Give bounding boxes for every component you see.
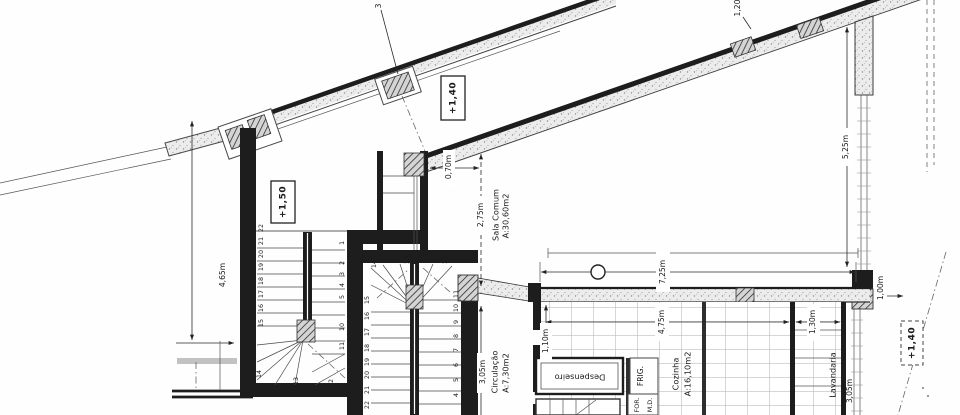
staircase-right: 14 13 12 15 16 17 18 19 20 21 22 11 10 9…	[363, 256, 461, 415]
kitchen-top-wall	[533, 288, 870, 302]
cabinet-run	[536, 399, 620, 415]
right-exterior	[852, 0, 946, 415]
step-number: 6	[452, 363, 460, 367]
laundry-depth-label: 3,05m	[845, 379, 854, 403]
corner-column	[852, 270, 873, 289]
dim-sala-height: 2,75m	[476, 203, 485, 227]
floor-plan-page: 22 21 20 19 18 17 16 15 1 2 3 4 5 10 11 …	[0, 0, 960, 415]
dim-circulation: 3,05m	[478, 360, 487, 384]
dim-left-wall: 4,65m	[218, 263, 227, 287]
axis-centerline	[402, 96, 425, 151]
stair2-left-treads	[371, 312, 410, 403]
step-number: 16	[363, 312, 371, 320]
left-stair-wall	[240, 128, 256, 397]
dishwasher-label: M.D.	[646, 398, 654, 413]
step-number: 22	[257, 224, 265, 232]
laundry-left-wall	[790, 302, 795, 415]
dim-sala-width: 7,25m	[658, 260, 667, 284]
step-number: 14	[255, 370, 263, 378]
pantry-label: Despenseiro	[555, 373, 606, 383]
stair1-newel-hatch	[297, 320, 315, 342]
wall-column-hatch	[796, 17, 823, 38]
diagonal-wall-upper	[0, 0, 616, 195]
axis-leader-line	[381, 10, 398, 74]
step-number: 13	[403, 256, 411, 264]
step-number: 10	[452, 304, 460, 312]
plot-mark	[922, 387, 924, 389]
plot-mark	[927, 395, 929, 397]
step-number: 2	[338, 261, 346, 265]
step-number: 13	[292, 377, 300, 385]
axis-3-label: 3	[374, 3, 383, 8]
drain-symbol	[591, 265, 605, 279]
step-number: 14	[370, 260, 378, 268]
step-number: 21	[257, 237, 265, 245]
level-upper-label: +1,40	[449, 82, 459, 114]
step-number: 18	[363, 344, 371, 352]
level-landing-label: +1,50	[279, 186, 289, 218]
interior-walls	[240, 128, 478, 415]
dim-niche: 0,70m	[444, 155, 453, 179]
fridge-label: FRIG.	[636, 366, 645, 386]
step-number: 4	[452, 393, 460, 397]
step-number: 5	[338, 295, 346, 299]
step-number: 12	[327, 379, 335, 387]
stair1-winder-lines	[257, 340, 345, 385]
kitchen-label: Cozinha	[671, 358, 681, 391]
step-number: 17	[363, 328, 371, 336]
dim-right-wall: 5,25m	[841, 135, 850, 159]
dim-leader-opening	[743, 17, 751, 29]
step-number: 12	[441, 256, 449, 264]
step-number: 1	[338, 241, 346, 245]
kitchen-partition	[702, 302, 706, 415]
dim-pantry: 1,10m	[541, 329, 550, 353]
step-number: 20	[257, 250, 265, 258]
step-number: 3	[338, 272, 346, 276]
kitchen-area-label: A:16,10m2	[683, 352, 693, 397]
step-number: 21	[363, 386, 371, 394]
step-number: 11	[452, 290, 460, 298]
slab-edge-line	[548, 248, 858, 258]
kitchen-left-wall	[533, 302, 541, 330]
step-number: 17	[257, 290, 265, 298]
dim-kitchen-right: 1,30m	[808, 310, 817, 334]
shaft-column-hatch	[404, 153, 424, 176]
stair1-step-numbers: 22 21 20 19 18 17 16 15 1 2 3 4 5 10 11 …	[255, 224, 346, 387]
step-number: 19	[363, 358, 371, 366]
stair2-newel-hatch	[406, 285, 423, 309]
boundary-dashed-lines	[927, 0, 934, 172]
step-number: 9	[452, 320, 460, 324]
threshold-band	[177, 358, 237, 364]
staircase-left: 22 21 20 19 18 17 16 15 1 2 3 4 5 10 11 …	[255, 224, 346, 387]
step-number: 11	[338, 342, 346, 350]
step-number: 4	[338, 283, 346, 287]
dim-kitchen-width: 4,75m	[657, 310, 666, 334]
shaft-left-wall	[377, 151, 383, 250]
floor-plan-drawing: 22 21 20 19 18 17 16 15 1 2 3 4 5 10 11 …	[0, 0, 960, 415]
window-mullion-ticks	[857, 108, 871, 264]
step-number: 20	[363, 371, 371, 379]
living-room-area-label: A:30,60m2	[501, 194, 511, 239]
step-number: 5	[452, 378, 460, 382]
circulation-label: Circulação	[490, 351, 500, 394]
kitchen-block: Despenseiro FRIG. FOR. M.D. Cozinha A:16…	[478, 278, 870, 415]
kitchen-wall-jog	[528, 283, 541, 302]
living-room-label: Sala Comum	[491, 189, 501, 241]
step-number: 7	[452, 348, 460, 352]
shaft-shelf-lines	[383, 176, 414, 193]
step-number: 10	[338, 323, 346, 331]
circulation-area-label: A:7,30m2	[501, 353, 511, 393]
laundry-label: Lavandaria	[828, 352, 838, 398]
step-number: 19	[257, 263, 265, 271]
step-number: 16	[257, 304, 265, 312]
stair1-bottom-wall	[240, 383, 363, 397]
step-number: 15	[257, 319, 265, 327]
axis-3-column	[375, 10, 425, 151]
oven-label: FOR.	[633, 398, 641, 413]
landing-wall	[360, 230, 428, 244]
step-number: 18	[257, 277, 265, 285]
step-number: 22	[363, 401, 371, 409]
stair2-column-hatch	[458, 275, 478, 301]
dim-terrace: 1,00m	[876, 276, 885, 300]
wall-connector	[478, 278, 535, 302]
kitchen-wall-column-hatch	[736, 288, 754, 302]
right-wall-stub	[855, 16, 873, 95]
level-lower-label: +1,40	[908, 327, 918, 359]
laundry-window-lines	[854, 308, 860, 415]
stair1-left-treads	[257, 248, 303, 326]
step-number: 8	[452, 334, 460, 338]
step-number: 15	[363, 296, 371, 304]
dim-opening: 1,20	[733, 0, 742, 16]
